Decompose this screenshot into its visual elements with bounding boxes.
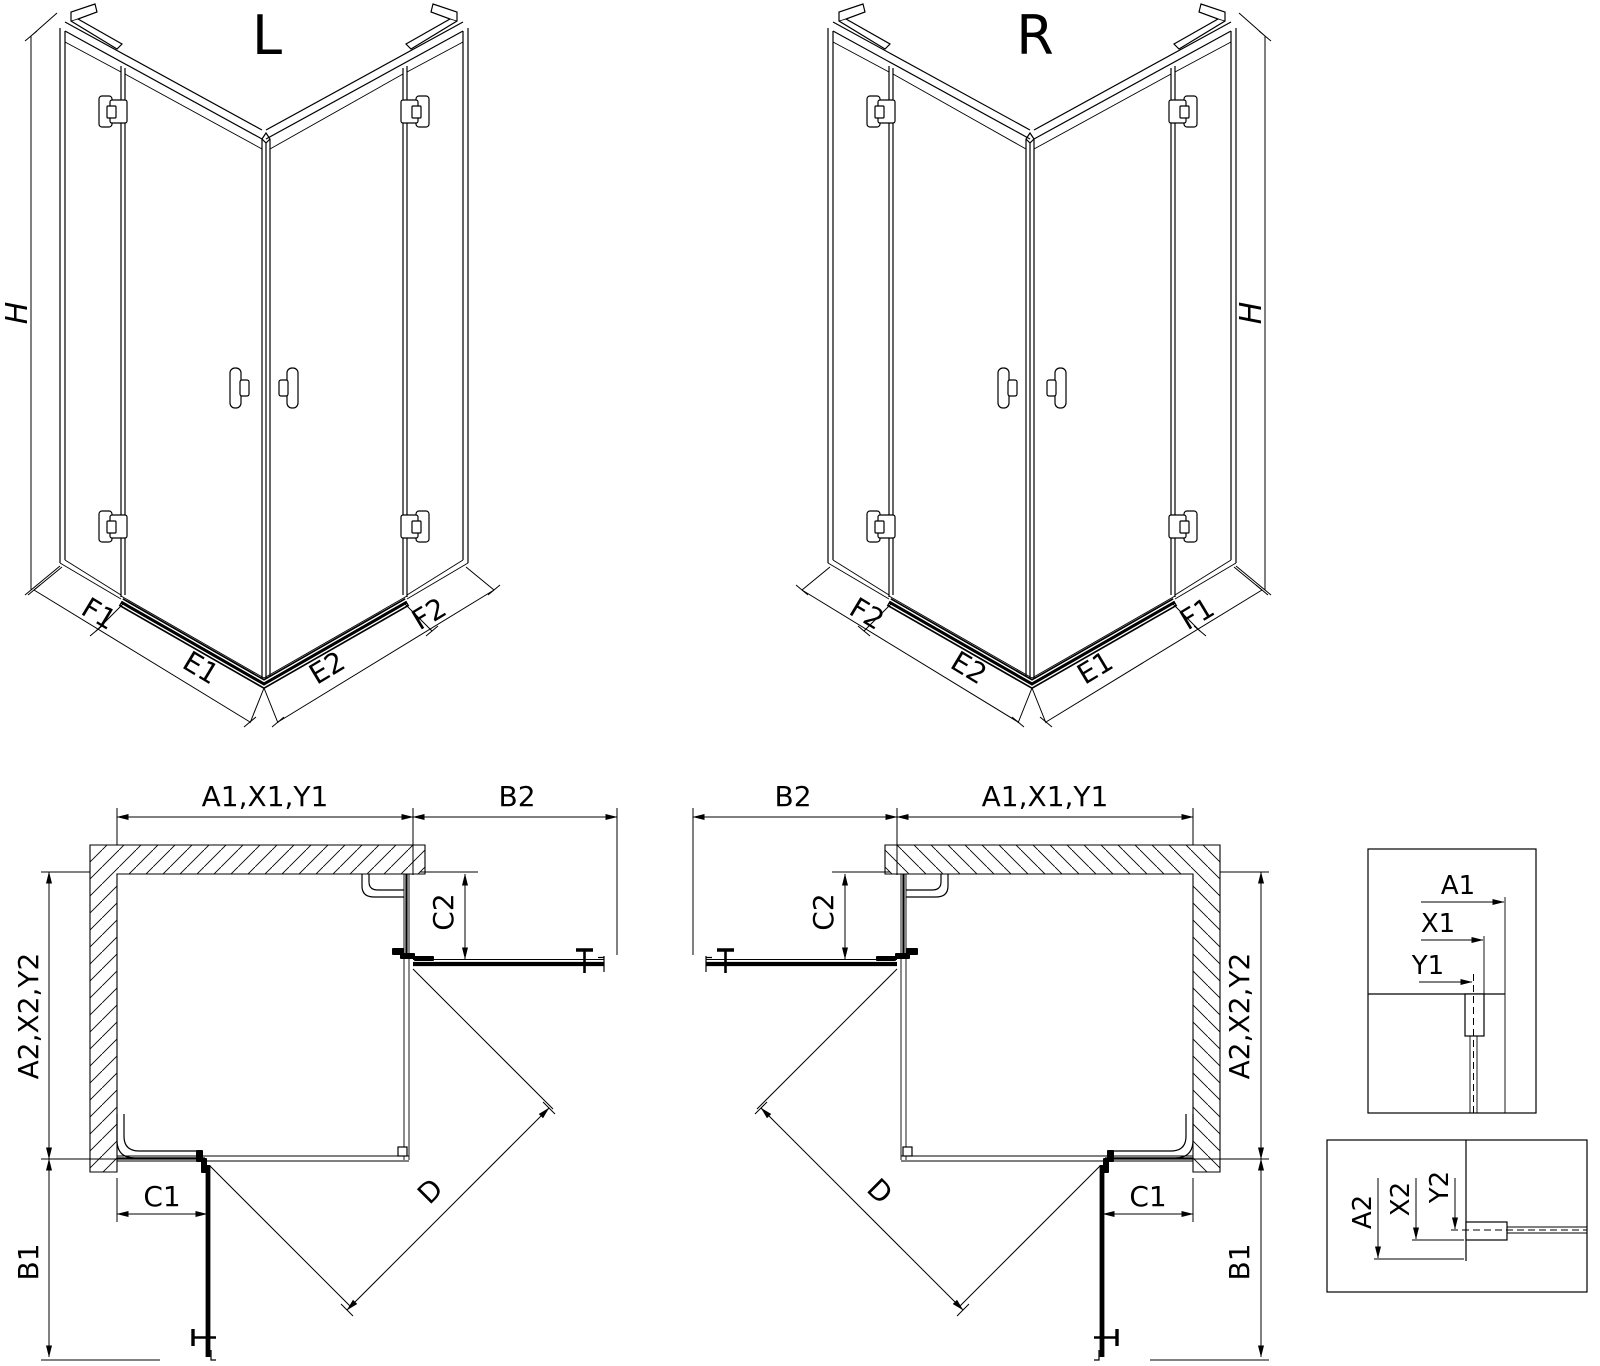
dim-label-c1-right: C1: [1129, 1180, 1166, 1213]
iso-view-right: R H F2 E2 E1 F1: [796, 4, 1271, 727]
detail-label-x1: X1: [1421, 909, 1455, 939]
detail-view-top: A1 X1 Y1: [1368, 849, 1536, 1113]
view-title-right: R: [1016, 4, 1054, 67]
plan-right-geometry: [693, 808, 1269, 1360]
dim-label-f2-left: F2: [406, 591, 452, 637]
dim-label-a1x1y1-left: A1,X1,Y1: [202, 780, 329, 813]
shower-enclosure-technical-drawing: L H F1 E1 E2 F2 R H F2 E2 E1 F1 A1,X1,Y1…: [0, 0, 1600, 1366]
dim-label-a2x2y2-right: A2,X2,Y2: [1223, 953, 1256, 1080]
dim-label-b2-left: B2: [498, 780, 535, 813]
dim-label-f1-right: F1: [1174, 591, 1220, 637]
dim-label-a1x1y1-right: A1,X1,Y1: [982, 780, 1109, 813]
plan-view-right: A1,X1,Y1 B2 C2 A2,X2,Y2 C1 B1 D: [693, 780, 1269, 1360]
detail-label-a2: A2: [1348, 1195, 1378, 1229]
detail-label-a1: A1: [1441, 871, 1475, 901]
technical-drawing-page: L H F1 E1 E2 F2 R H F2 E2 E1 F1 A1,X1,Y1…: [0, 0, 1600, 1366]
iso-view-left: L H F1 E1 E2 F2: [0, 4, 500, 727]
detail-label-x2: X2: [1386, 1182, 1416, 1216]
dim-label-b1-right: B1: [1223, 1243, 1256, 1280]
dim-label-f2-right: F2: [844, 591, 890, 637]
view-title-left: L: [252, 4, 282, 67]
detail-label-y1: Y1: [1411, 951, 1444, 981]
dim-label-a2x2y2-left: A2,X2,Y2: [12, 953, 45, 1080]
dim-label-height-left: H: [0, 302, 35, 325]
detail-label-y2: Y2: [1425, 1171, 1455, 1204]
dim-label-c1-left: C1: [143, 1180, 180, 1213]
dim-label-d-left: D: [411, 1172, 450, 1211]
dim-label-c2-right: C2: [807, 893, 840, 930]
plan-left-geometry: [41, 808, 617, 1360]
dim-label-b1-left: B1: [12, 1243, 45, 1280]
dim-label-f1-left: F1: [76, 591, 122, 637]
dim-label-height-right: H: [1234, 302, 1269, 325]
dim-label-b2-right: B2: [774, 780, 811, 813]
dim-label-c2-left: C2: [427, 893, 460, 930]
plan-view-left: A1,X1,Y1 B2 C2 A2,X2,Y2 C1 B1 D: [12, 780, 617, 1360]
detail-view-bottom: A2 X2 Y2: [1327, 1140, 1587, 1292]
dim-label-d-right: D: [860, 1172, 899, 1211]
